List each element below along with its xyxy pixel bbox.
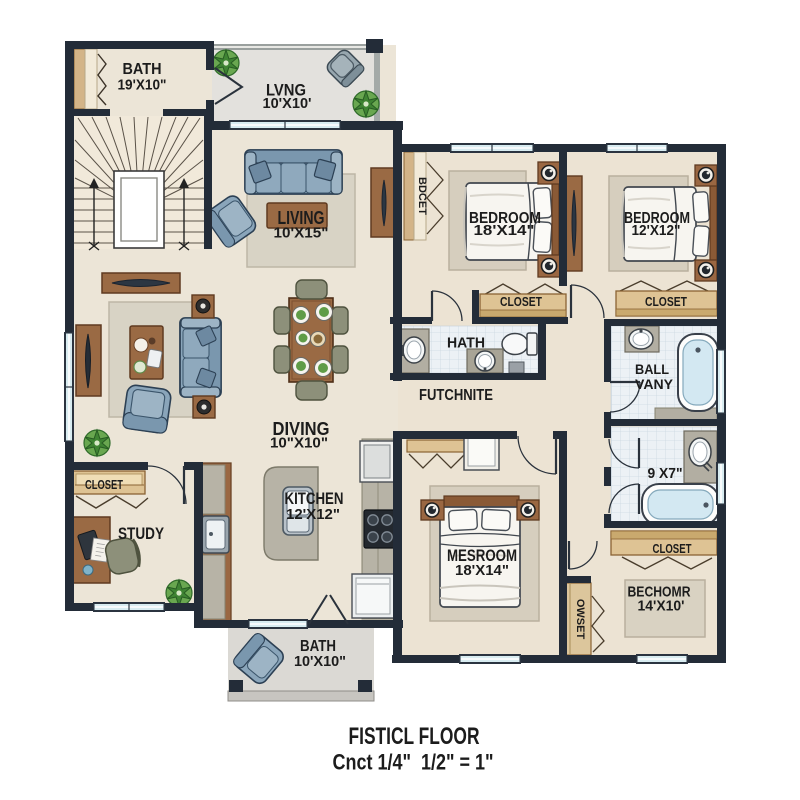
svg-text:10"X10": 10"X10"	[270, 436, 328, 452]
svg-text:9 X7": 9 X7"	[648, 466, 683, 482]
svg-text:OWSET: OWSET	[574, 599, 586, 640]
svg-text:KITCHEN: KITCHEN	[285, 489, 344, 508]
svg-text:CLOSET: CLOSET	[653, 541, 692, 556]
svg-text:14'X10': 14'X10'	[638, 599, 685, 615]
svg-text:12'X12": 12'X12"	[286, 507, 340, 523]
svg-text:STUDY: STUDY	[118, 524, 165, 543]
svg-text:VANY: VANY	[635, 376, 674, 392]
svg-text:FUTCHNITE: FUTCHNITE	[419, 387, 493, 404]
svg-text:BATH: BATH	[123, 61, 162, 78]
svg-text:18'X14": 18'X14"	[474, 223, 535, 239]
svg-text:12'X12": 12'X12"	[632, 223, 681, 239]
svg-text:10'X10": 10'X10"	[294, 653, 346, 670]
svg-text:HATH: HATH	[447, 335, 485, 352]
svg-text:CLOSET: CLOSET	[500, 294, 542, 309]
svg-text:BDCET: BDCET	[416, 177, 428, 215]
svg-text:18'X14": 18'X14"	[455, 562, 509, 579]
svg-text:10'X15": 10'X15"	[274, 226, 329, 242]
svg-text:Cnct 1/4" 1/2" = 1": Cnct 1/4" 1/2" = 1"	[333, 750, 494, 775]
svg-text:CLOSET: CLOSET	[645, 294, 687, 309]
svg-text:CLOSET: CLOSET	[85, 478, 123, 492]
svg-text:10'X10': 10'X10'	[263, 96, 312, 112]
svg-text:FISTICL FLOOR: FISTICL FLOOR	[349, 723, 480, 750]
svg-text:BALL: BALL	[635, 361, 669, 377]
svg-text:19'X10": 19'X10"	[118, 78, 167, 94]
